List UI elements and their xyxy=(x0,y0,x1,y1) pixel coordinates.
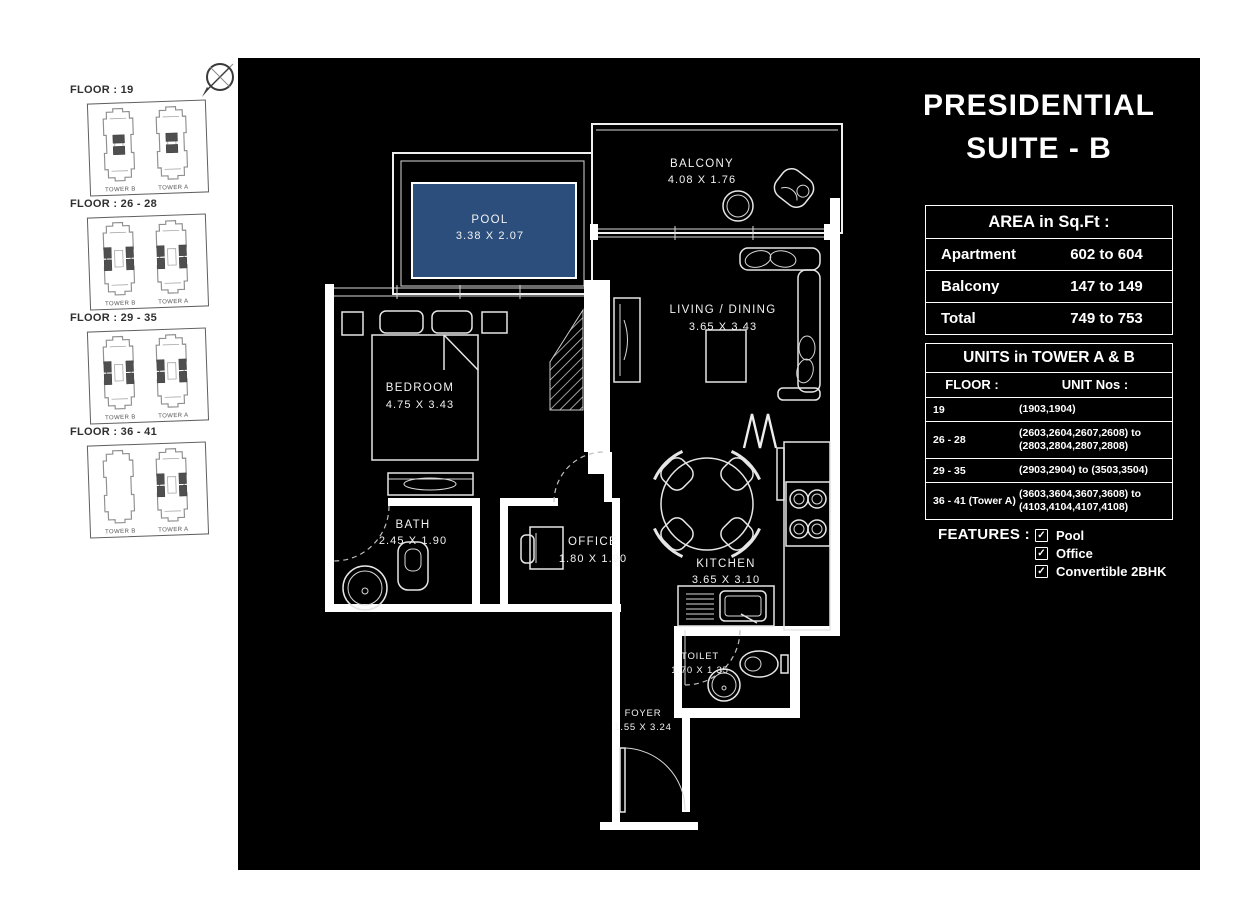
svg-text:TOWER B: TOWER B xyxy=(105,300,136,307)
nightstand-right xyxy=(482,312,507,333)
floor-thumb-29-35: FLOOR : 29 - 35 xyxy=(64,312,224,429)
foyer: FOYER 1.55 X 3.24 xyxy=(614,708,685,812)
entrance-door-arc xyxy=(625,748,685,810)
feature-item: ✓ Convertible 2BHK xyxy=(1035,562,1167,580)
key-plan-36-41: TOWER B TOWER A xyxy=(84,441,212,543)
stove xyxy=(786,482,830,546)
balcony-table xyxy=(723,191,753,221)
toilet-dims: 1.70 X 1.35 xyxy=(671,665,728,676)
bath: BATH 2.45 X 1.90 xyxy=(343,519,447,610)
bedroom-windows xyxy=(334,285,584,299)
feature-item-label: Convertible 2BHK xyxy=(1056,564,1167,579)
floor-thumb-label: FLOOR : 36 - 41 xyxy=(70,426,224,438)
bedroom-label: BEDROOM xyxy=(386,382,455,394)
svg-text:TOWER A: TOWER A xyxy=(158,185,189,192)
bath-dims: 2.45 X 1.90 xyxy=(379,535,447,547)
table-row: 26 - 28 (2603,2604,2607,2608) to (2803,2… xyxy=(926,422,1172,459)
kitchen: KITCHEN 3.65 X 3.10 xyxy=(654,442,830,630)
balcony-label: BALCONY xyxy=(670,158,734,170)
floor-thumb-36-41: FLOOR : 36 - 41 xyxy=(64,426,224,543)
foyer-label: FOYER xyxy=(625,708,662,719)
table-row: 36 - 41 (Tower A) (3603,3604,3607,3608) … xyxy=(926,483,1172,519)
pool-dims: 3.38 X 2.07 xyxy=(456,230,524,242)
kitchen-sink xyxy=(678,586,774,626)
floor-thumb-label: FLOOR : 29 - 35 xyxy=(70,312,224,324)
svg-text:TOWER A: TOWER A xyxy=(158,299,189,306)
walls xyxy=(325,198,840,830)
key-plan-26-28: TOWER B TOWER A xyxy=(84,213,212,315)
features-label: FEATURES : xyxy=(938,526,1035,580)
office-label: OFFICE xyxy=(568,536,618,548)
svg-text:TOWER A: TOWER A xyxy=(158,413,189,420)
svg-text:TOWER A: TOWER A xyxy=(158,527,189,534)
table-row: Total 749 to 753 xyxy=(926,303,1172,334)
counter-handle xyxy=(777,448,784,500)
living-dining: LIVING / DINING 3.65 X 3.43 xyxy=(614,248,820,448)
table-row: Balcony 147 to 149 xyxy=(926,271,1172,303)
round-sink xyxy=(343,566,387,610)
kitchen-dims: 3.65 X 3.10 xyxy=(692,574,760,586)
living-dims: 3.65 X 3.43 xyxy=(689,321,757,333)
desk-chair xyxy=(521,535,534,563)
table-row: 29 - 35 (2903,2904) to (3503,3504) xyxy=(926,459,1172,483)
kitchen-label: KITCHEN xyxy=(696,558,756,570)
floor-thumb-label: FLOOR : 26 - 28 xyxy=(70,198,224,210)
office-dims: 1.80 X 1.90 xyxy=(559,553,627,565)
dining-set xyxy=(654,451,759,556)
units-table-header: UNITS in TOWER A & B xyxy=(926,344,1172,373)
toilet-label: TOILET xyxy=(681,651,719,662)
bedroom-door-arc xyxy=(334,506,389,561)
floorplan-canvas: POOL 3.38 X 2.07 xyxy=(238,58,1200,870)
feature-item: ✓ Pool xyxy=(1035,526,1167,544)
svg-text:TOWER B: TOWER B xyxy=(105,528,136,535)
floor-thumb-19: FLOOR : 19 xyxy=(64,84,224,201)
table-row: 19 (1903,1904) xyxy=(926,398,1172,422)
toilet-fixture xyxy=(398,542,428,590)
balcony-dims: 4.08 X 1.76 xyxy=(668,174,736,186)
nightstand-left xyxy=(342,312,363,335)
svg-text:TOWER B: TOWER B xyxy=(105,414,136,421)
entrance-door-leaf xyxy=(620,748,625,812)
svg-text:TOWER B: TOWER B xyxy=(105,186,136,193)
coffee-table xyxy=(706,330,746,382)
balcony-chair xyxy=(770,164,818,211)
pillow xyxy=(432,311,472,333)
bath-label: BATH xyxy=(395,519,430,531)
pool-label: POOL xyxy=(471,214,508,226)
feature-item-label: Office xyxy=(1056,546,1093,561)
bed-fold xyxy=(444,335,478,370)
wc-fixture xyxy=(740,651,788,677)
checkbox-checked-icon: ✓ xyxy=(1035,529,1048,542)
floor-thumb-26-28: FLOOR : 26 - 28 xyxy=(64,198,224,315)
dresser xyxy=(388,473,473,495)
title-line-2: SUITE - B xyxy=(880,127,1198,170)
feature-item-label: Pool xyxy=(1056,528,1084,543)
units-table-columns: FLOOR : UNIT Nos : xyxy=(926,373,1172,398)
pillow xyxy=(380,311,423,333)
table-row: Apartment 602 to 604 xyxy=(926,239,1172,271)
area-table: AREA in Sq.Ft : Apartment 602 to 604 Bal… xyxy=(925,205,1173,335)
title-line-1: PRESIDENTIAL xyxy=(880,84,1198,127)
page-title: PRESIDENTIAL SUITE - B xyxy=(880,84,1198,170)
bedroom-dims: 4.75 X 3.43 xyxy=(386,399,454,411)
units-table: UNITS in TOWER A & B FLOOR : UNIT Nos : … xyxy=(925,343,1173,520)
key-plan-19: TOWER B TOWER A xyxy=(84,99,212,201)
checkbox-checked-icon: ✓ xyxy=(1035,547,1048,560)
features-list: FEATURES : ✓ Pool ✓ Office ✓ Convertible… xyxy=(938,526,1167,580)
w-marker xyxy=(744,414,776,448)
key-plan-29-35: TOWER B TOWER A xyxy=(84,327,212,429)
toilet: TOILET 1.70 X 1.35 xyxy=(671,630,788,701)
shaft-hatch xyxy=(550,310,583,410)
balcony: BALCONY 4.08 X 1.76 xyxy=(590,124,842,240)
feature-item: ✓ Office xyxy=(1035,544,1167,562)
checkbox-checked-icon: ✓ xyxy=(1035,565,1048,578)
floor-thumb-label: FLOOR : 19 xyxy=(70,84,224,96)
pool-area: POOL 3.38 X 2.07 xyxy=(393,153,592,294)
area-table-header: AREA in Sq.Ft : xyxy=(926,206,1172,239)
foyer-dims: 1.55 X 3.24 xyxy=(614,722,671,733)
brochure-page: FLOOR : 19 xyxy=(0,0,1260,900)
tv-unit xyxy=(614,298,640,382)
living-label: LIVING / DINING xyxy=(669,304,776,316)
